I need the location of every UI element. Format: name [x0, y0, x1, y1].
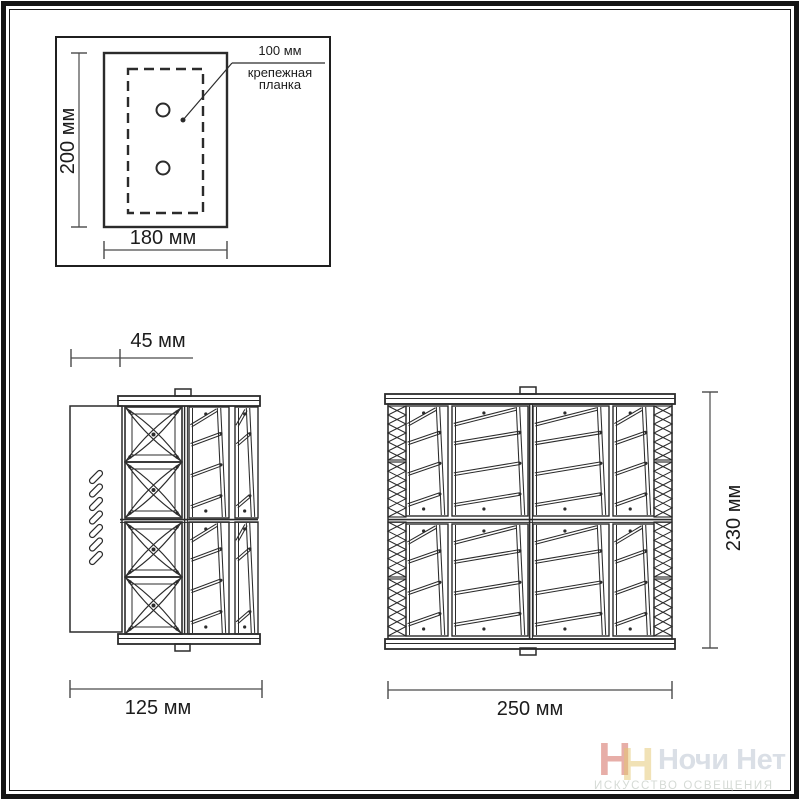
technical-drawing-page: 200 мм 180 мм 100 мм крепежная планка 45…: [0, 0, 800, 800]
side-depth-dimension-label: 45 мм: [116, 330, 200, 353]
side-view-drawing: [55, 330, 290, 730]
front-width-dimension-label: 250 мм: [482, 698, 578, 721]
front-view-drawing: [380, 380, 750, 720]
mount-height-dimension-label: 200 мм: [57, 101, 77, 181]
brand-tagline: ИСКУССТВО ОСВЕЩЕНИЯ: [594, 780, 796, 792]
front-height-dimension-label: 230 мм: [723, 478, 743, 558]
bracket-offset-label: 100 мм: [233, 45, 327, 57]
brand-name: Ночи Нет: [658, 744, 786, 777]
mount-width-dimension-label: 180 мм: [115, 227, 211, 250]
brand-watermark: Н Н Ночи Нет ИСКУССТВО ОСВЕЩЕНИЯ: [594, 736, 796, 796]
side-width-dimension-label: 125 мм: [110, 697, 206, 720]
bracket-name-label: крепежная планка: [233, 67, 327, 91]
